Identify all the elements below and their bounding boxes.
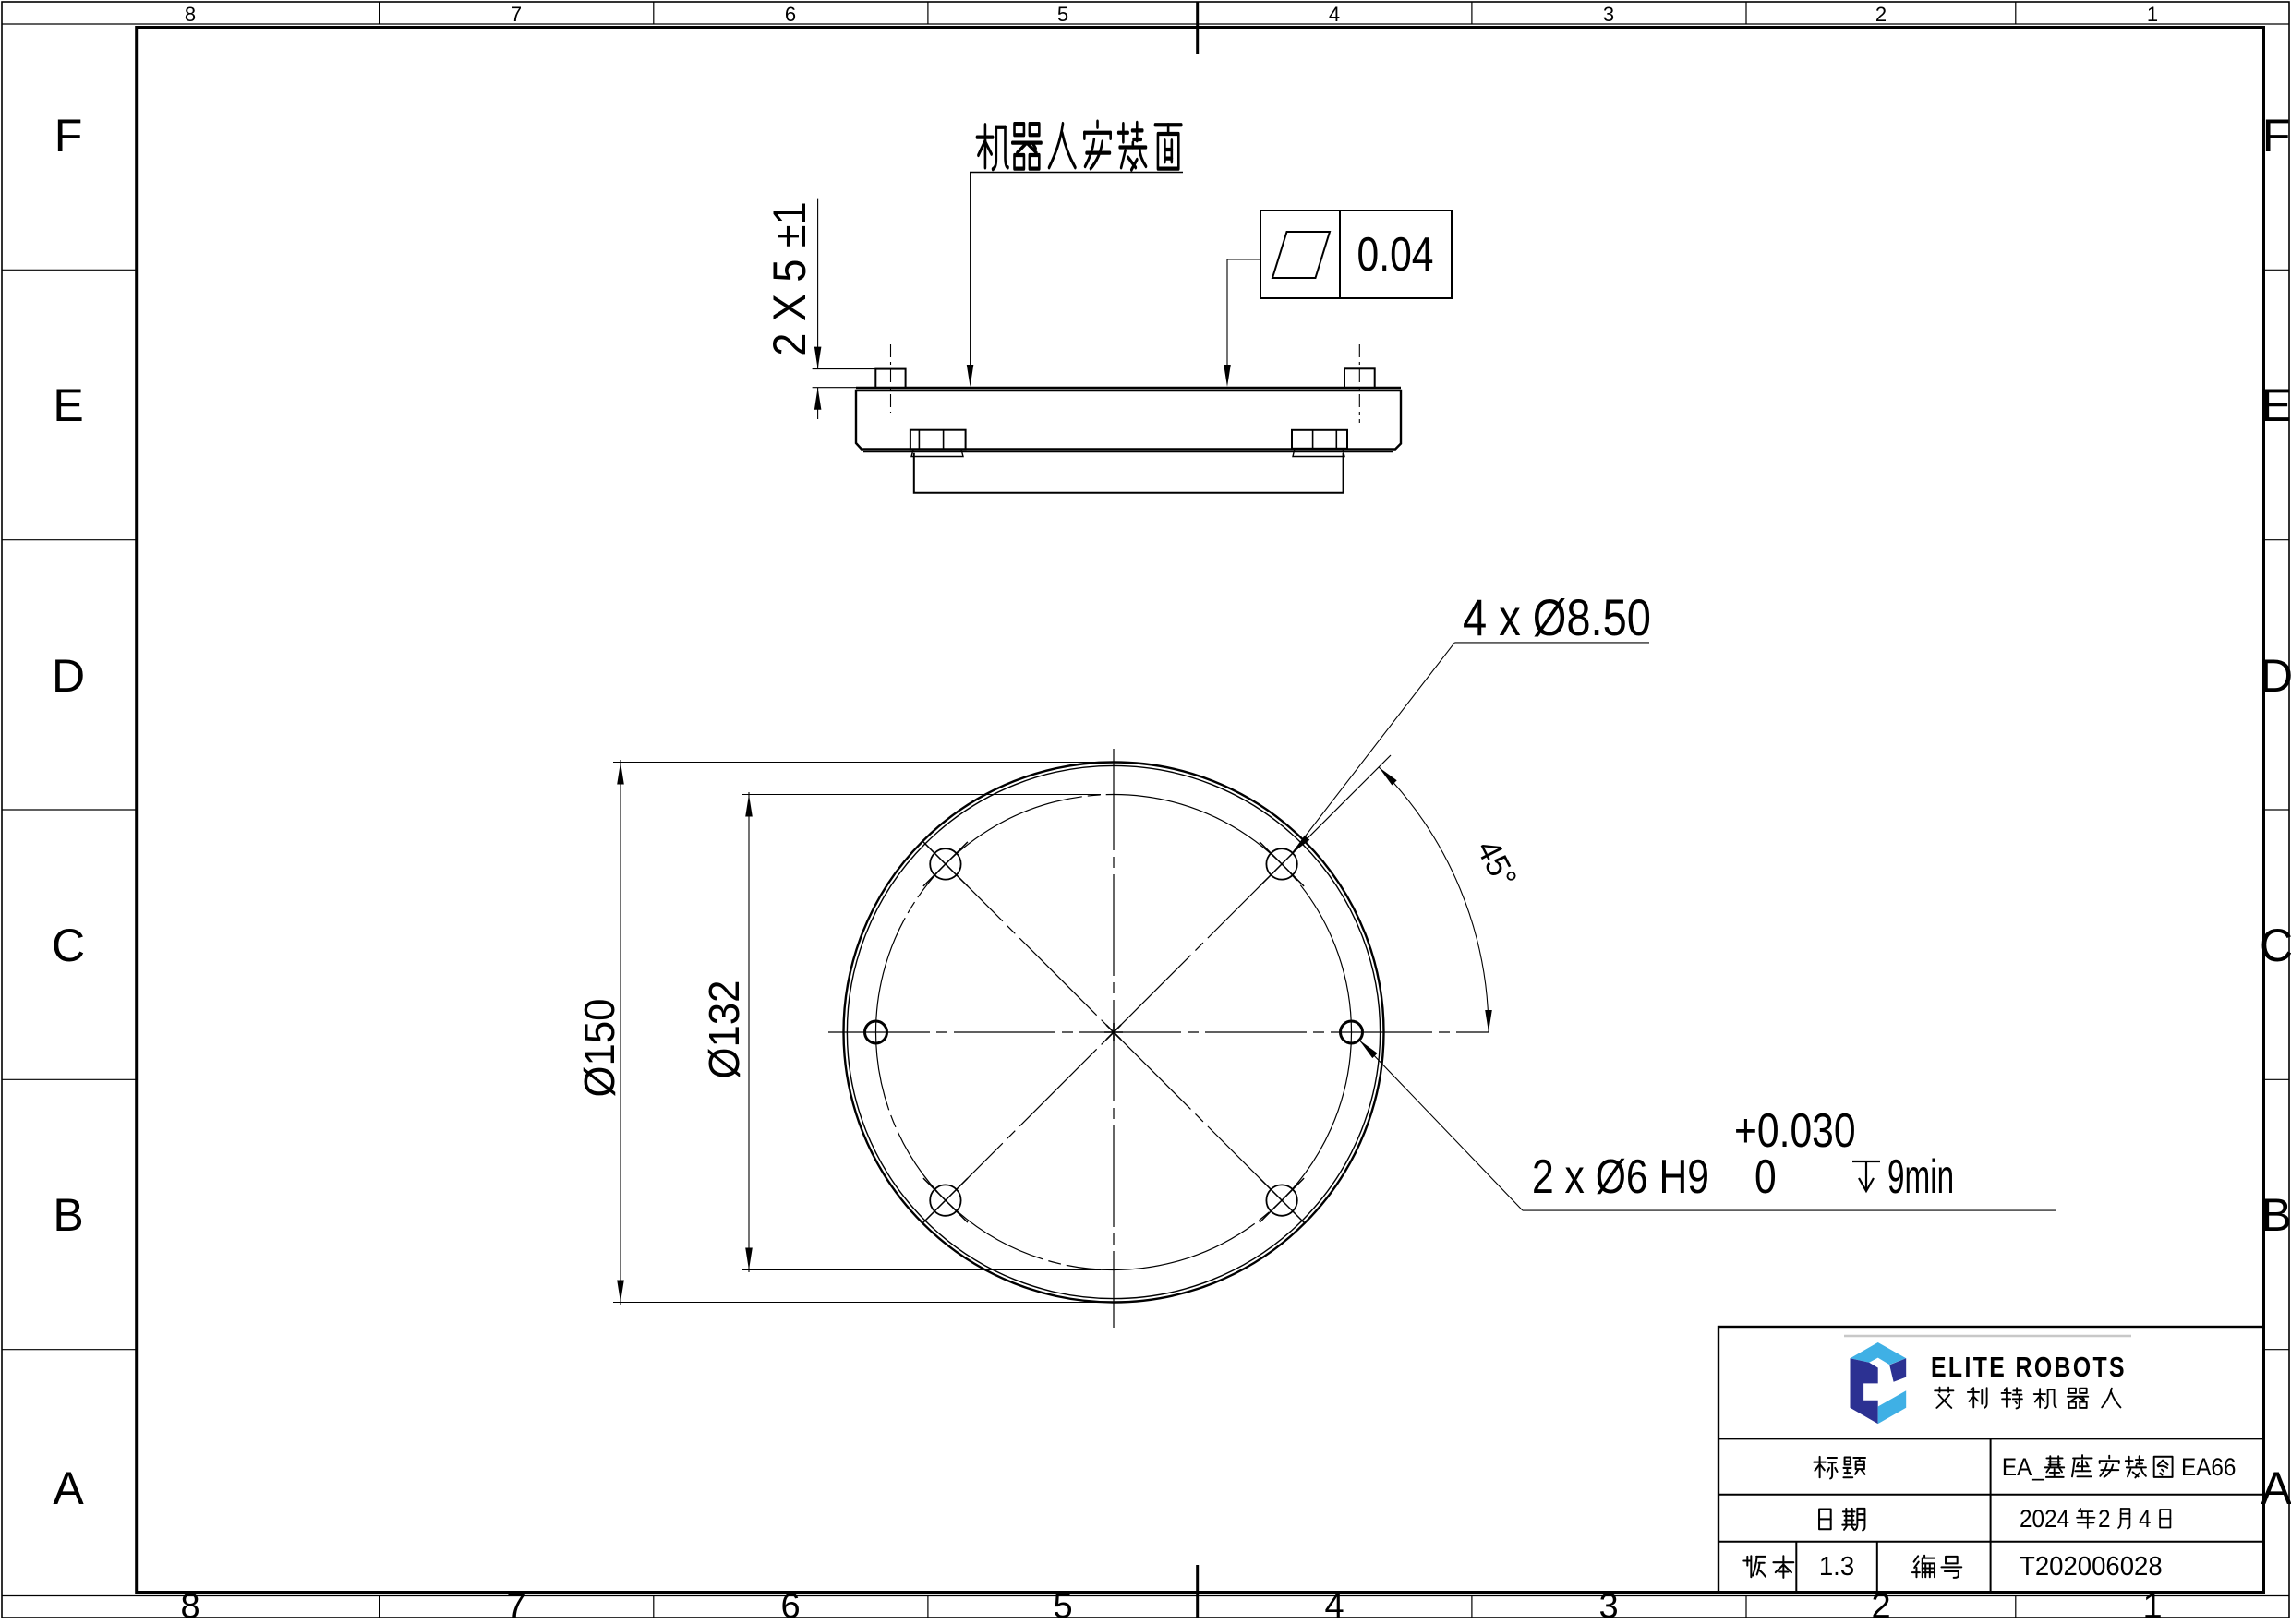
svg-text:2: 2 (1875, 3, 1887, 26)
svg-text:2024: 2024 (2020, 1506, 2069, 1533)
svg-text:F: F (2262, 110, 2291, 162)
svg-text:7: 7 (511, 3, 522, 26)
svg-text:4: 4 (1324, 1587, 1344, 1619)
svg-text:6: 6 (785, 3, 796, 26)
svg-text:ELITE ROBOTS: ELITE ROBOTS (1931, 1351, 2127, 1382)
svg-text:B: B (53, 1189, 83, 1241)
svg-text:0: 0 (1754, 1150, 1777, 1204)
svg-text:1.3: 1.3 (1819, 1550, 1854, 1581)
svg-text:2 X 5 ±1: 2 X 5 ±1 (765, 201, 816, 355)
svg-text:8: 8 (185, 3, 196, 26)
svg-text:9min: 9min (1887, 1150, 1954, 1204)
svg-text:3: 3 (1598, 1587, 1618, 1619)
svg-text:D: D (52, 650, 85, 702)
svg-text:2: 2 (2098, 1506, 2111, 1533)
svg-text:4: 4 (1329, 3, 1340, 26)
svg-text:0.04: 0.04 (1357, 228, 1434, 282)
svg-text:E: E (2261, 379, 2291, 431)
svg-text:4 x Ø8.50: 4 x Ø8.50 (1463, 588, 1651, 646)
svg-text:4: 4 (2139, 1506, 2152, 1533)
svg-text:+0.030: +0.030 (1734, 1104, 1856, 1158)
svg-text:3: 3 (1603, 3, 1614, 26)
svg-text:8: 8 (180, 1587, 199, 1619)
svg-text:2 x Ø6 H9: 2 x Ø6 H9 (1532, 1150, 1709, 1204)
svg-text:EA66: EA66 (2181, 1454, 2236, 1481)
svg-text:A: A (53, 1462, 84, 1514)
svg-text:1: 1 (2147, 3, 2158, 26)
svg-text:Ø132: Ø132 (700, 980, 748, 1079)
svg-text:D: D (2260, 650, 2291, 702)
svg-text:6: 6 (780, 1587, 800, 1619)
svg-text:5: 5 (1053, 1587, 1072, 1619)
svg-text:EA_: EA_ (2002, 1454, 2045, 1481)
svg-text:T202006028: T202006028 (2020, 1550, 2163, 1581)
svg-text:C: C (52, 920, 85, 971)
svg-text:F: F (54, 110, 83, 162)
svg-text:7: 7 (506, 1587, 525, 1619)
svg-text:Ø150: Ø150 (575, 999, 623, 1098)
svg-text:B: B (2261, 1189, 2291, 1241)
svg-text:E: E (53, 379, 83, 431)
svg-text:5: 5 (1057, 3, 1068, 26)
svg-text:A: A (2261, 1462, 2291, 1514)
svg-text:C: C (2260, 920, 2291, 971)
